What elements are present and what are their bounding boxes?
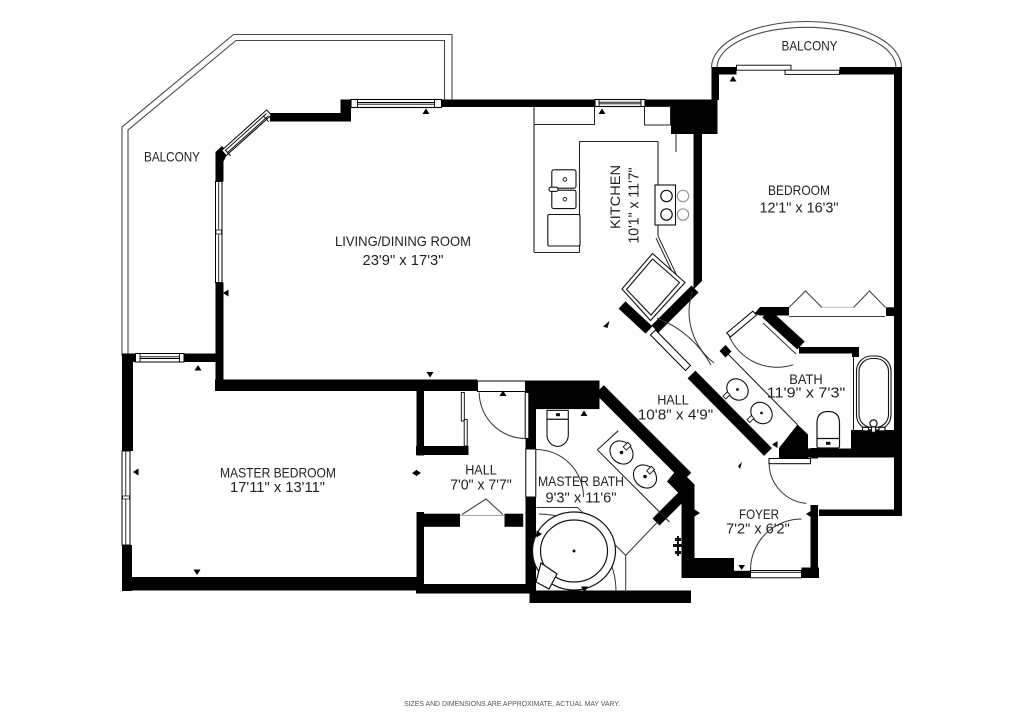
svg-text:17'11" x 13'11": 17'11" x 13'11" bbox=[230, 480, 325, 496]
svg-text:HALL: HALL bbox=[465, 462, 497, 478]
svg-text:7'0" x 7'7": 7'0" x 7'7" bbox=[450, 478, 512, 494]
svg-text:BEDROOM: BEDROOM bbox=[768, 182, 830, 198]
svg-text:KITCHEN: KITCHEN bbox=[607, 165, 623, 229]
svg-text:BALCONY: BALCONY bbox=[782, 38, 839, 54]
svg-text:MASTER BATH: MASTER BATH bbox=[538, 473, 624, 489]
svg-text:23'9" x 17'3": 23'9" x 17'3" bbox=[363, 253, 444, 269]
svg-text:9'3" x 11'6": 9'3" x 11'6" bbox=[546, 491, 617, 507]
svg-text:FOYER: FOYER bbox=[739, 506, 779, 522]
svg-text:11'9" x 7'3": 11'9" x 7'3" bbox=[767, 386, 846, 402]
svg-text:7'2" x 6'2": 7'2" x 6'2" bbox=[726, 522, 790, 538]
svg-text:12'1" x 16'3": 12'1" x 16'3" bbox=[760, 201, 839, 217]
svg-text:HALL: HALL bbox=[657, 392, 689, 408]
svg-text:MASTER BEDROOM: MASTER BEDROOM bbox=[220, 465, 336, 481]
svg-text:10'8" x 4'9": 10'8" x 4'9" bbox=[638, 408, 714, 424]
svg-text:BALCONY: BALCONY bbox=[144, 149, 201, 165]
svg-text:LIVING/DINING ROOM: LIVING/DINING ROOM bbox=[335, 233, 471, 249]
svg-text:SIZES AND DIMENSIONS ARE APPRO: SIZES AND DIMENSIONS ARE APPROXIMATE, AC… bbox=[404, 699, 620, 708]
svg-text:10'1" x 11'7": 10'1" x 11'7" bbox=[627, 168, 643, 244]
